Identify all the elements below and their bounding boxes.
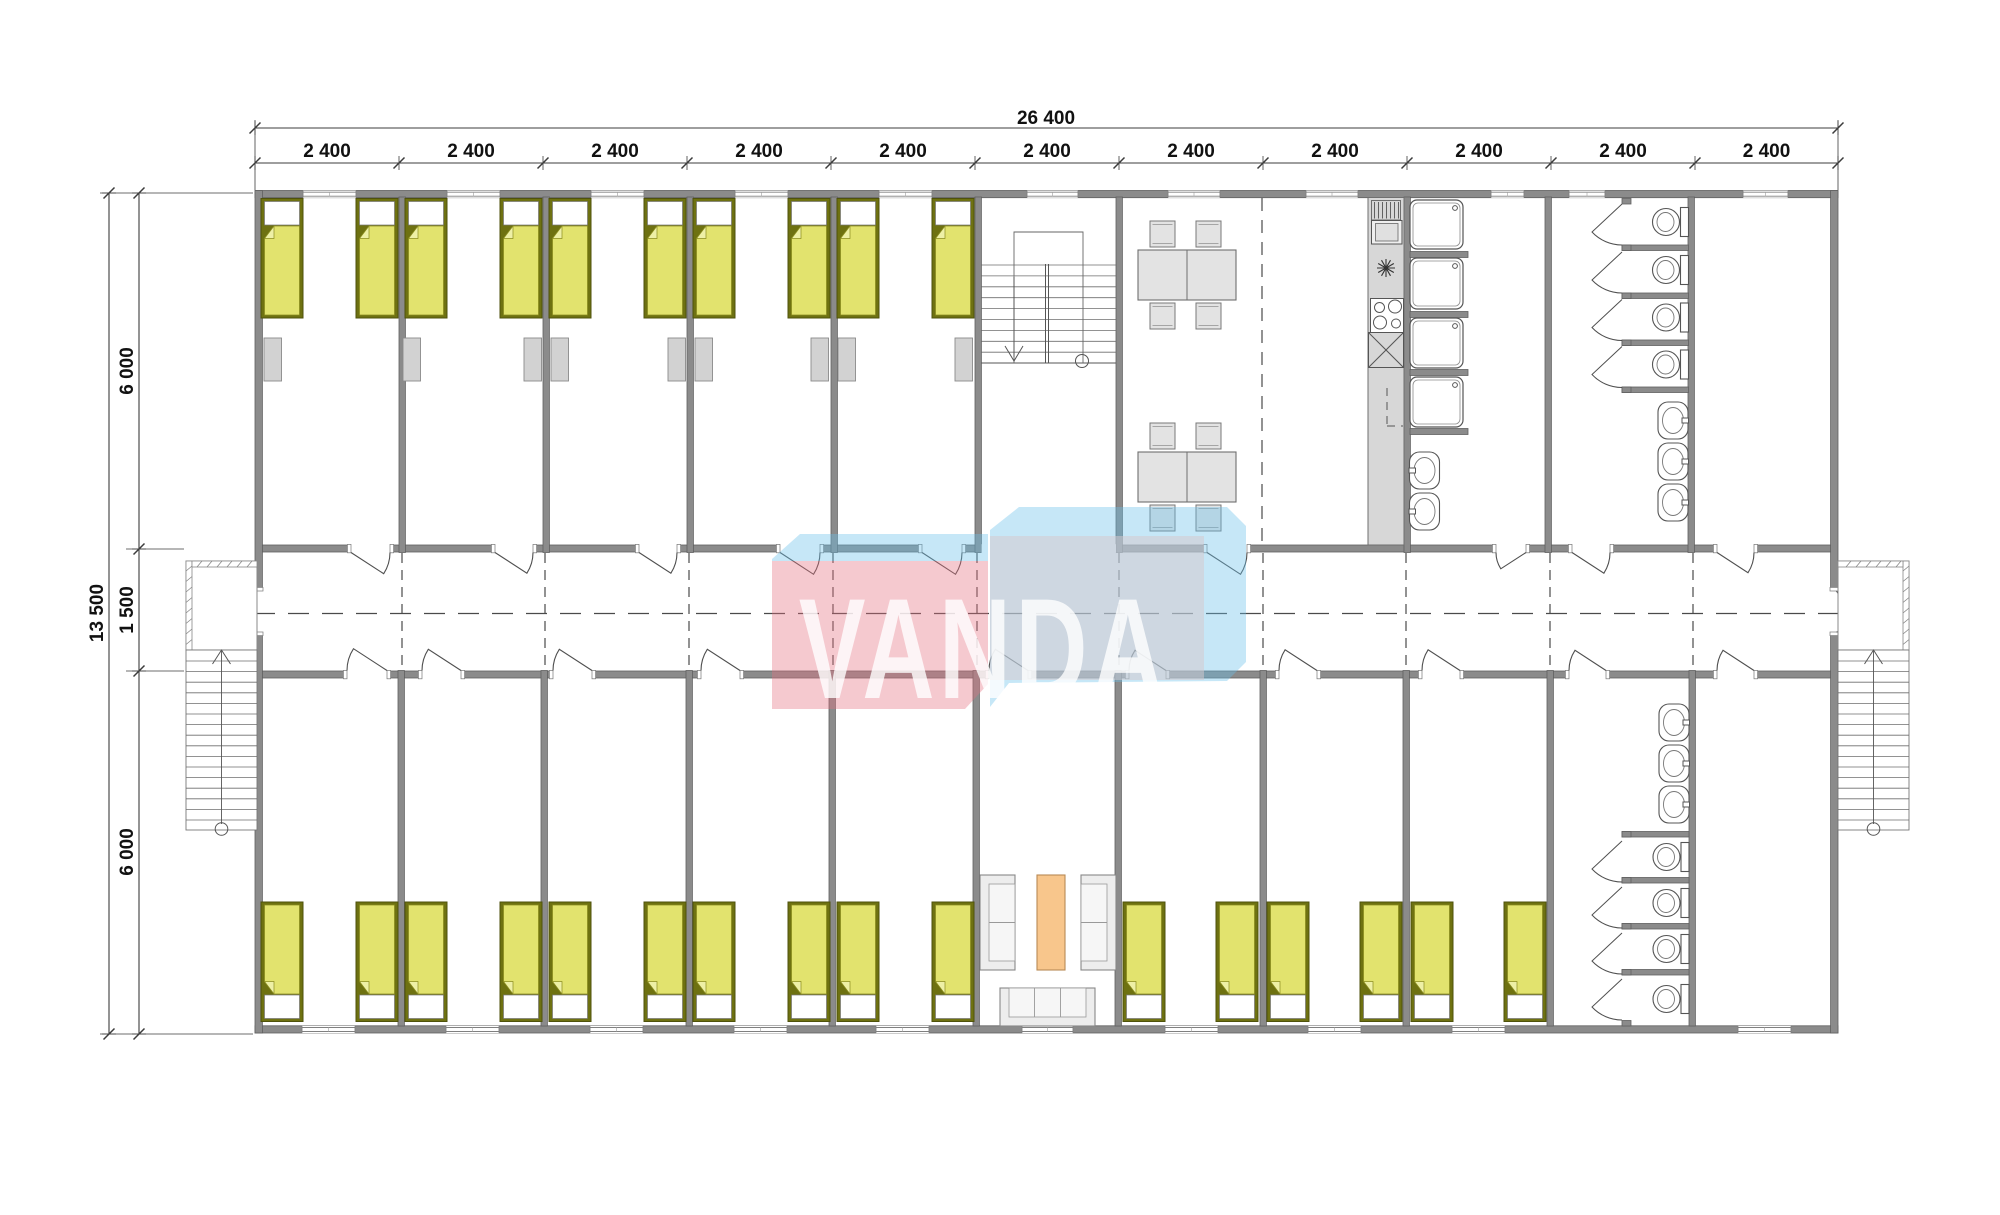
- svg-text:2 400: 2 400: [1599, 141, 1647, 162]
- svg-text:6 000: 6 000: [117, 828, 138, 876]
- svg-text:2 400: 2 400: [447, 141, 495, 162]
- svg-text:2 400: 2 400: [1743, 141, 1791, 162]
- svg-text:1 500: 1 500: [117, 586, 138, 634]
- svg-text:6 000: 6 000: [117, 347, 138, 395]
- svg-text:26 400: 26 400: [1017, 108, 1075, 129]
- svg-text:2 400: 2 400: [303, 141, 351, 162]
- svg-text:2 400: 2 400: [1455, 141, 1503, 162]
- svg-text:13 500: 13 500: [87, 584, 108, 642]
- svg-text:2 400: 2 400: [1311, 141, 1359, 162]
- svg-text:VANDA: VANDA: [799, 569, 1168, 729]
- svg-text:2 400: 2 400: [879, 141, 927, 162]
- svg-text:2 400: 2 400: [735, 141, 783, 162]
- svg-text:2 400: 2 400: [591, 141, 639, 162]
- svg-text:2 400: 2 400: [1023, 141, 1071, 162]
- svg-text:2 400: 2 400: [1167, 141, 1215, 162]
